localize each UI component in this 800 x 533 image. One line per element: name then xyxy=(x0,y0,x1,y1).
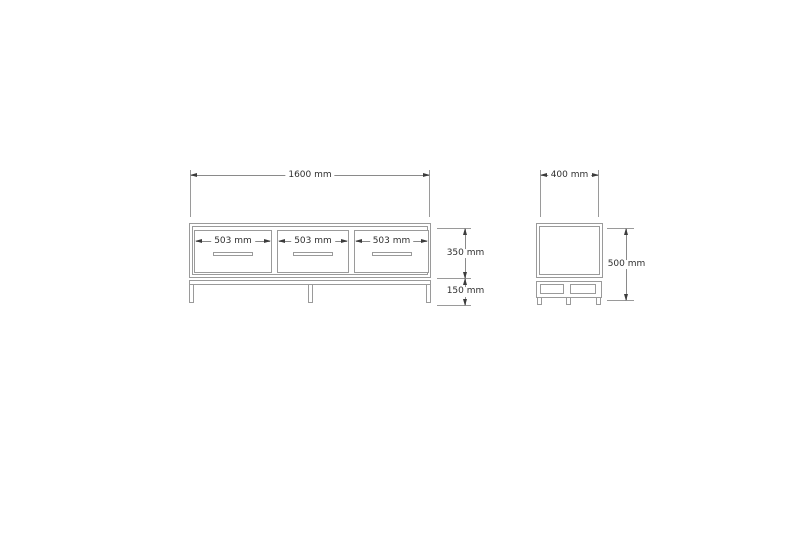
drawer-3-width-label: 503 mm xyxy=(370,237,414,247)
side-base-frame xyxy=(536,281,602,298)
arrow-left-icon xyxy=(190,173,197,177)
front-width-label: 1600 mm xyxy=(285,171,334,181)
drawer-2: 503 mm xyxy=(277,230,349,273)
front-body-height-dimension: 350 mm xyxy=(461,228,470,279)
front-leg-right xyxy=(426,284,431,303)
side-depth-dimension: 400 mm xyxy=(540,171,599,180)
side-base-opening-left xyxy=(540,284,564,294)
arrow-right-icon xyxy=(264,239,271,243)
drawer-3: 503 mm xyxy=(354,230,429,273)
front-leg-height-dimension: 150 mm xyxy=(461,278,470,306)
drawer-1-width-label: 503 mm xyxy=(211,237,255,247)
drawer-1: 503 mm xyxy=(194,230,272,273)
arrow-left-icon xyxy=(278,239,285,243)
side-cabinet-body xyxy=(536,223,603,278)
arrow-down-icon xyxy=(463,299,467,306)
side-height-label: 500 mm xyxy=(605,260,649,270)
front-leg-height-label: 150 mm xyxy=(444,287,488,297)
drawer-1-width-dimension: 503 mm xyxy=(195,237,271,246)
side-cabinet-body-inner-line xyxy=(539,226,600,275)
drawer-3-width-dimension: 503 mm xyxy=(355,237,428,246)
drawer-2-handle xyxy=(293,252,333,256)
arrow-right-icon xyxy=(423,173,430,177)
side-height-dimension: 500 mm xyxy=(622,228,631,301)
arrow-left-icon xyxy=(195,239,202,243)
side-foot-right xyxy=(596,297,601,305)
arrow-left-icon xyxy=(540,173,547,177)
front-cabinet-body: 503 mm 503 mm 50 xyxy=(189,223,431,278)
front-leg-middle xyxy=(308,284,313,303)
side-depth-label: 400 mm xyxy=(548,171,592,181)
drawer-1-handle xyxy=(213,252,253,256)
arrow-up-icon xyxy=(463,278,467,285)
front-leg-left xyxy=(189,284,194,303)
side-foot-left xyxy=(537,297,542,305)
arrow-up-icon xyxy=(463,228,467,235)
drawer-2-width-dimension: 503 mm xyxy=(278,237,348,246)
drawer-2-width-label: 503 mm xyxy=(291,237,335,247)
arrow-right-icon xyxy=(592,173,599,177)
side-foot-middle xyxy=(566,297,571,305)
arrow-up-icon xyxy=(624,228,628,235)
front-body-height-label: 350 mm xyxy=(444,249,488,259)
arrow-down-icon xyxy=(624,294,628,301)
arrow-left-icon xyxy=(355,239,362,243)
arrow-right-icon xyxy=(341,239,348,243)
drawer-3-handle xyxy=(372,252,412,256)
front-width-dimension: 1600 mm xyxy=(190,171,430,180)
arrow-right-icon xyxy=(421,239,428,243)
technical-drawing-canvas: 1600 mm 503 mm 503 xyxy=(0,0,800,533)
side-base-opening-right xyxy=(570,284,596,294)
